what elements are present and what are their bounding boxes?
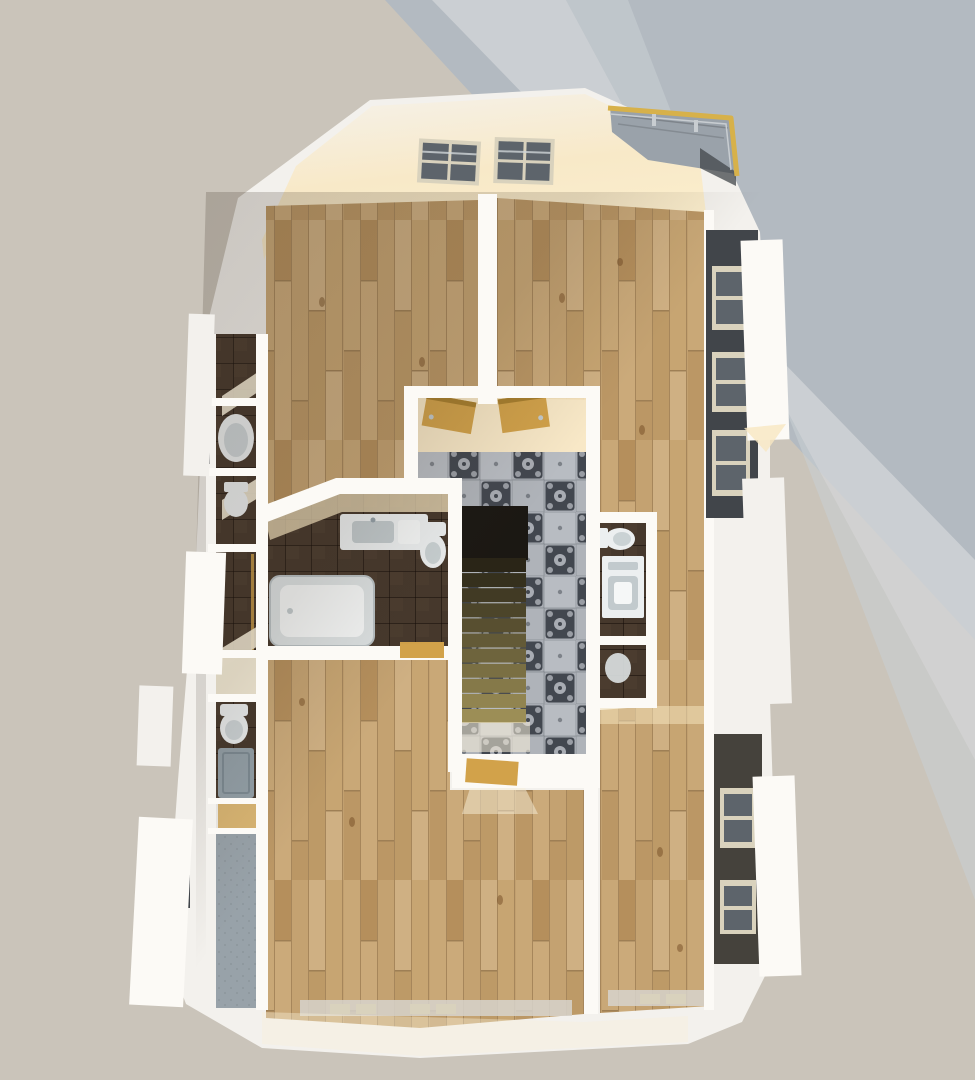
building bbox=[129, 88, 801, 1058]
pier-left-4 bbox=[129, 817, 193, 1008]
wall-cell-div-6 bbox=[208, 798, 256, 804]
skylight-2 bbox=[493, 137, 555, 185]
balcony-post-1 bbox=[652, 114, 656, 126]
pier-left-3 bbox=[137, 685, 174, 766]
wall-vestibule-left bbox=[404, 394, 418, 490]
wall-bottom-divider bbox=[584, 788, 598, 1014]
facade-right-lower bbox=[714, 734, 762, 964]
wall-cell-div-7 bbox=[208, 828, 256, 834]
wall-vestibule-top bbox=[404, 386, 600, 398]
wall-wc-divider bbox=[594, 636, 650, 645]
wall-wc-bottom bbox=[594, 698, 652, 708]
balcony-post-2 bbox=[694, 120, 698, 132]
wall-bathroom-right bbox=[448, 478, 462, 772]
wall-cell-div-2 bbox=[208, 468, 256, 476]
wall-wc-top bbox=[592, 512, 654, 523]
wall-cell-div-5 bbox=[208, 694, 256, 702]
floorplan-render bbox=[0, 0, 975, 1080]
door-bathroom-south-leaf bbox=[400, 644, 444, 658]
wall-r1-r2 bbox=[478, 194, 497, 404]
pier-right-3 bbox=[753, 775, 802, 976]
wall-hallway-right bbox=[586, 394, 600, 766]
render-canvas bbox=[0, 0, 975, 1080]
wall-cell-div-1 bbox=[208, 398, 256, 406]
wall-wc-right bbox=[646, 512, 657, 708]
wall-cell-div-3 bbox=[208, 544, 256, 552]
wall-left-strip-inner bbox=[256, 334, 268, 1010]
pier-right-1 bbox=[741, 239, 790, 440]
skylight-1 bbox=[417, 138, 481, 185]
pier-left-2 bbox=[182, 551, 226, 674]
pier-right-2 bbox=[742, 477, 792, 704]
door-hall-bottom-leaf bbox=[465, 758, 519, 786]
